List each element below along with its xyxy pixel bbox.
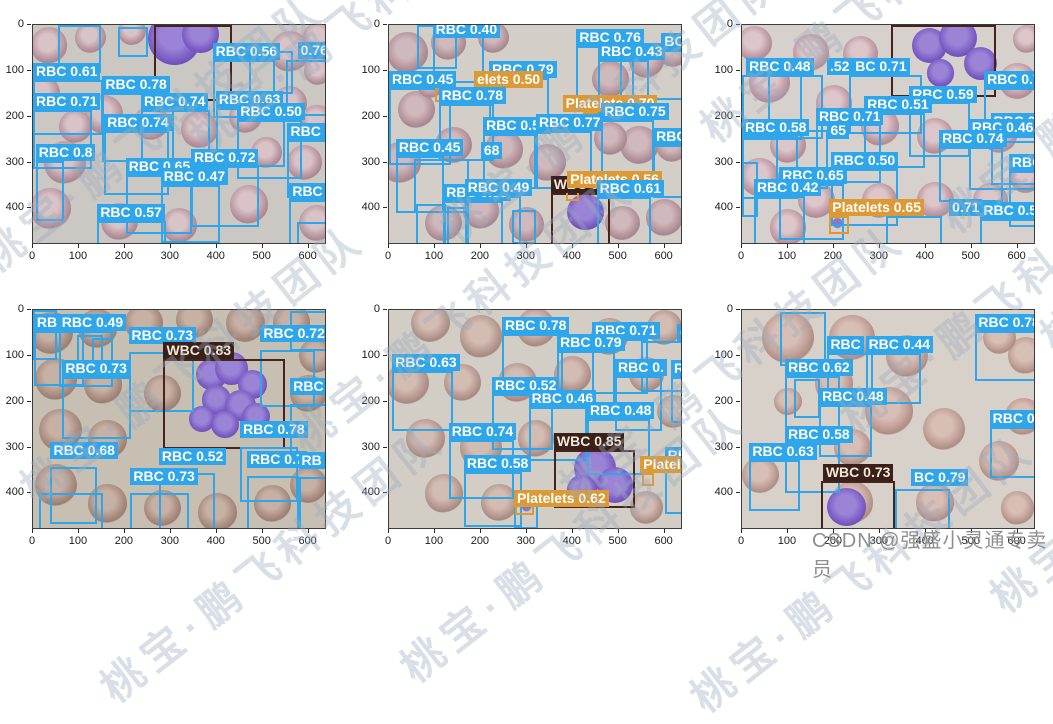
bbox-rbc [130, 493, 188, 529]
bbox-label-rbc: RBC [827, 336, 863, 353]
bbox-rbc [671, 377, 682, 423]
y-tick-label: 200 [0, 395, 24, 407]
y-tick-label: 400 [699, 486, 733, 498]
y-tick-mark [736, 162, 740, 163]
bbox-label-rbc: RBC 0.78 [240, 421, 307, 438]
y-tick-label: 0 [346, 303, 380, 315]
x-tick-label: 500 [609, 250, 627, 262]
x-tick-label: 600 [654, 250, 672, 262]
x-tick-mark [434, 529, 435, 533]
subplot-row2-col2: RBC 0.78RBC 0.71C 0.RBC 0.79RBC 0.63RBC … [388, 309, 682, 529]
x-tick-mark [124, 244, 125, 248]
bbox-label-rbc: RB [34, 314, 60, 331]
bbox-label-rbc: RBC 0.56 [213, 43, 280, 60]
bbox-label-rbc: RBC 0.44 [866, 336, 933, 353]
y-tick-label: 300 [0, 156, 24, 168]
bbox-rbc [895, 489, 950, 529]
x-tick-label: 200 [471, 535, 489, 547]
x-tick-label: 0 [738, 535, 744, 547]
rbc-cell [226, 309, 265, 342]
x-tick-label: 300 [517, 535, 535, 547]
x-tick-mark [262, 244, 263, 248]
bbox-label-rbc: RBC 0.58 [785, 426, 852, 443]
x-tick-mark [480, 244, 481, 248]
y-tick-mark [736, 309, 740, 310]
y-tick-label: 300 [346, 156, 380, 168]
x-tick-mark [1017, 244, 1018, 248]
x-tick-label: 0 [385, 535, 391, 547]
y-tick-label: 300 [699, 441, 733, 453]
y-tick-mark [383, 24, 387, 25]
y-tick-label: 0 [0, 18, 24, 30]
y-tick-label: 200 [699, 110, 733, 122]
bbox-label-rbc: RBC [290, 378, 326, 395]
bbox-rbc [754, 196, 805, 245]
x-tick-mark [787, 244, 788, 248]
bbox-rbc [601, 120, 654, 174]
y-tick-mark [383, 355, 387, 356]
bbox-rbc [299, 477, 326, 529]
bbox-label-rbc: RBC 0.74 [104, 114, 171, 131]
bbox-label-rbc: RBC 0.48 [746, 58, 813, 75]
bbox-rbc [118, 27, 147, 57]
y-tick-label: 0 [346, 18, 380, 30]
bbox-rbc [247, 476, 299, 529]
bbox-label-rbc: RB [299, 452, 325, 469]
x-tick-label: 200 [115, 535, 133, 547]
y-tick-mark [383, 207, 387, 208]
micrograph-row2-col2: RBC 0.78RBC 0.71C 0.RBC 0.79RBC 0.63RBC … [388, 309, 682, 529]
y-tick-mark [27, 309, 31, 310]
bbox-label-rbc: RBC 0.72 [260, 325, 326, 342]
bbox-rbc [39, 493, 103, 529]
y-tick-mark [383, 492, 387, 493]
y-tick-mark [27, 355, 31, 356]
y-tick-mark [383, 401, 387, 402]
x-tick-label: 400 [563, 535, 581, 547]
x-tick-mark [925, 244, 926, 248]
bbox-rbc [36, 161, 64, 221]
y-tick-mark [383, 447, 387, 448]
x-tick-label: 200 [115, 250, 133, 262]
y-tick-mark [383, 309, 387, 310]
bbox-wbc [821, 481, 895, 529]
bbox-rbc [62, 377, 131, 439]
y-tick-label: 0 [699, 18, 733, 30]
bbox-label-rbc: RBC 0.45 [396, 139, 463, 156]
x-tick-mark [480, 529, 481, 533]
y-tick-label: 0 [0, 303, 24, 315]
bbox-label-rbc: RBC 0.74 [939, 130, 1006, 147]
x-tick-label: 400 [207, 250, 225, 262]
x-tick-label: 0 [385, 250, 391, 262]
x-tick-label: 100 [425, 250, 443, 262]
bbox-label-rbc: RBC 0.63 [749, 443, 816, 460]
y-tick-mark [383, 116, 387, 117]
x-tick-mark [833, 244, 834, 248]
x-tick-mark [741, 529, 742, 533]
y-tick-label: 200 [699, 395, 733, 407]
rbc-cell [646, 199, 682, 236]
y-tick-label: 100 [346, 64, 380, 76]
bbox-label-rbc: RBC 0.75 [601, 103, 668, 120]
bbox-label-wbc: WBC 0.73 [823, 464, 894, 481]
x-tick-label: 500 [253, 250, 271, 262]
y-tick-label: 400 [0, 201, 24, 213]
x-tick-label: 400 [916, 250, 934, 262]
x-tick-mark [434, 244, 435, 248]
y-tick-mark [27, 24, 31, 25]
x-tick-label: 600 [298, 535, 316, 547]
bbox-label-platelets: Platelets 0.62 [514, 490, 609, 507]
x-tick-mark [526, 244, 527, 248]
bbox-label-rbc: RBC 0.42 [754, 179, 821, 196]
x-tick-mark [170, 529, 171, 533]
micrograph-row1-col2: RBC 0.40BC 0.RBC 0.76RBC 0.43RBC 0.79ele… [388, 24, 682, 244]
rbc-cell [460, 315, 502, 357]
bbox-rbc [980, 219, 1035, 244]
bbox-label-rbc: RBC 0.74 [141, 93, 208, 110]
bbox-rbc [597, 197, 651, 244]
x-tick-mark [388, 529, 389, 533]
bbox-label-rbc: RBC 0.8 [36, 144, 96, 161]
bbox-label-rbc: 68 [481, 142, 503, 159]
x-tick-mark [78, 244, 79, 248]
bbox-label-rbc: RBC 0.77 [536, 114, 603, 131]
y-tick-label: 200 [346, 395, 380, 407]
x-tick-label: 300 [517, 250, 535, 262]
bbox-label-rbc: C 0. [677, 324, 682, 341]
x-tick-mark [879, 244, 880, 248]
bbox-label-rbc: RBC [1009, 154, 1035, 171]
bbox-label-rbc: 65 [827, 122, 849, 139]
x-tick-mark [170, 244, 171, 248]
bbox-rbc [416, 204, 446, 244]
y-tick-label: 200 [346, 110, 380, 122]
x-tick-label: 500 [253, 535, 271, 547]
bbox-label-rbc: RBC 0.5 [980, 202, 1035, 219]
micrograph-row2-col3: RBC 0.78RBCRBC 0.44RBC 0.62RBC 0.48RBC 0… [741, 309, 1035, 529]
subplot-row1-col2: RBC 0.40BC 0.RBC 0.76RBC 0.43RBC 0.79ele… [388, 24, 682, 244]
rbc-cell [1001, 491, 1034, 524]
subplot-row2-col1: RBRBC 0.49RBC 0.73RBC 0.72WBC 0.83RBC 0.… [32, 309, 326, 529]
bbox-label-rbc: RBC 0.40 [433, 24, 500, 38]
y-tick-mark [736, 492, 740, 493]
bbox-label-rbc: RBC 0.58 [742, 119, 809, 136]
bbox-label-rbc: RBC 0.52 [159, 448, 226, 465]
x-tick-label: 200 [824, 250, 842, 262]
bbox-rbc [749, 460, 800, 510]
x-tick-mark [572, 529, 573, 533]
x-tick-label: 600 [298, 250, 316, 262]
rbc-cell [923, 408, 965, 450]
y-tick-label: 300 [346, 441, 380, 453]
bbox-rbc [392, 371, 453, 432]
bbox-label-rbc: RBC 0. [287, 123, 326, 140]
bbox-platelets [829, 216, 849, 234]
y-tick-label: 100 [699, 64, 733, 76]
x-tick-label: 600 [1007, 250, 1025, 262]
bbox-label-rbc: RBC 0.73 [130, 468, 197, 485]
bbox-rbc [886, 216, 942, 244]
subplot-row2-col3: RBC 0.78RBCRBC 0.44RBC 0.62RBC 0.48RBC 0… [741, 309, 1035, 529]
x-tick-label: 500 [962, 250, 980, 262]
bbox-rbc [512, 210, 536, 244]
y-tick-mark [736, 70, 740, 71]
x-tick-mark [618, 244, 619, 248]
y-tick-mark [27, 447, 31, 448]
bbox-label-rbc: RBC 0.74 [449, 423, 516, 440]
rbc-cell [741, 26, 772, 61]
bbox-rbc [447, 207, 469, 245]
x-tick-label: 300 [161, 250, 179, 262]
bbox-label-rbc: RBC 0.68 [50, 442, 117, 459]
y-tick-mark [383, 162, 387, 163]
x-tick-mark [124, 529, 125, 533]
micrograph-row1-col1: 0.76RBC 0.56RBC 0.61RBC 0.78RBC 0.71RBC … [32, 24, 326, 244]
x-tick-mark [32, 529, 33, 533]
x-tick-mark [78, 529, 79, 533]
x-tick-label: 300 [161, 535, 179, 547]
y-tick-label: 300 [699, 156, 733, 168]
x-tick-label: 0 [29, 250, 35, 262]
x-tick-label: 0 [29, 535, 35, 547]
x-tick-label: 100 [69, 250, 87, 262]
bbox-label-rbc: RBC 0.62 [785, 359, 852, 376]
bbox-label-rbc: RBC 0.49 [465, 179, 532, 196]
x-tick-mark [664, 244, 665, 248]
bbox-label-rbc: RBC 0.61 [597, 180, 664, 197]
y-tick-label: 100 [0, 64, 24, 76]
y-tick-mark [27, 162, 31, 163]
bbox-label-rbc: RBC 0.71 [816, 108, 883, 125]
x-tick-label: 100 [778, 250, 796, 262]
y-tick-label: 200 [0, 110, 24, 122]
bbox-rbc [939, 147, 1003, 202]
x-tick-label: 100 [425, 535, 443, 547]
x-tick-mark [618, 529, 619, 533]
x-tick-mark [262, 529, 263, 533]
bbox-label-rbc: RBC 0.6 [990, 410, 1035, 427]
x-tick-mark [971, 244, 972, 248]
y-tick-mark [736, 447, 740, 448]
bbox-label-wbc: WBC 0.85 [554, 433, 625, 450]
x-tick-label: 600 [654, 535, 672, 547]
x-tick-mark [32, 244, 33, 248]
x-tick-mark [526, 529, 527, 533]
y-tick-mark [736, 355, 740, 356]
bbox-label-rbc: RBC 0.48 [819, 388, 886, 405]
x-tick-mark [388, 244, 389, 248]
y-tick-label: 300 [0, 441, 24, 453]
bbox-label-rbc: RBC 0.47 [161, 168, 228, 185]
bbox-rbc [161, 185, 220, 243]
x-tick-label: 400 [207, 535, 225, 547]
rbc-cell [411, 309, 450, 342]
y-tick-mark [736, 401, 740, 402]
x-tick-label: 100 [69, 535, 87, 547]
y-tick-label: 400 [346, 201, 380, 213]
bbox-label-rbc: 0.76 [298, 42, 326, 59]
bbox-label-rbc: RBC 0. [289, 183, 326, 200]
y-tick-label: 400 [346, 486, 380, 498]
x-tick-label: 500 [609, 535, 627, 547]
bbox-rbc [297, 222, 326, 244]
bbox-label-rbc: .52 [827, 58, 852, 75]
bbox-platelets [642, 473, 654, 486]
x-tick-mark [308, 529, 309, 533]
y-tick-mark [736, 207, 740, 208]
bbox-label-rbc: RBC 0.79 [557, 334, 624, 351]
y-tick-label: 100 [0, 349, 24, 361]
bbox-label-rbc: RBC 0.48 [587, 402, 654, 419]
y-tick-mark [27, 492, 31, 493]
y-tick-mark [27, 207, 31, 208]
micrograph-row2-col1: RBRBC 0.49RBC 0.73RBC 0.72WBC 0.83RBC 0.… [32, 309, 326, 529]
x-tick-label: 200 [471, 250, 489, 262]
x-tick-mark [308, 244, 309, 248]
bbox-label-rbc: RBC 0.71 [33, 93, 100, 110]
bbox-label-rbc: RBC 0. [615, 359, 667, 376]
bbox-label-rbc: RBC 0.78 [975, 314, 1035, 331]
bbox-label-rbc: RBC 0.46 [529, 390, 596, 407]
y-tick-label: 100 [699, 349, 733, 361]
y-tick-mark [736, 116, 740, 117]
bbox-label-rbc: RB [671, 360, 682, 377]
detection-figure: 0.76RBC 0.56RBC 0.61RBC 0.78RBC 0.71RBC … [0, 0, 1053, 561]
y-tick-mark [383, 70, 387, 71]
micrograph-row1-col3: .52BC 0.71RBC 0.48RBC 0.7RBC 0.59RBC 0.5… [741, 24, 1035, 244]
bbox-label-rbc: RBC 0.43 [598, 43, 665, 60]
bbox-label-rbc: RBC 0.78 [502, 317, 569, 334]
x-tick-mark [216, 529, 217, 533]
bbox-label-platelets: Platelets 0.65 [829, 199, 924, 216]
bbox-label-rbc: RBC 0.7 [984, 71, 1035, 88]
x-tick-label: 100 [778, 535, 796, 547]
bbox-label-rbc: RBC 0.78 [439, 87, 506, 104]
y-tick-label: 0 [699, 303, 733, 315]
bbox-label-rbc: BC 0.71 [852, 58, 909, 75]
y-tick-mark [27, 70, 31, 71]
bbox-rbc [990, 427, 1035, 478]
x-tick-mark [787, 529, 788, 533]
bbox-label-rbc: RBC 0.73 [62, 360, 129, 377]
x-tick-mark [741, 244, 742, 248]
bbox-label-rbc: BC 0.79 [911, 469, 968, 486]
y-tick-mark [736, 24, 740, 25]
csdn-watermark: CSDN @强盛小灵通专卖员 [812, 524, 1053, 582]
bbox-label-rbc: RBC 0.61 [33, 63, 100, 80]
rbc-cell [1013, 25, 1035, 53]
bbox-label-platelets: Platelets [640, 456, 682, 473]
bbox-label-rbc: RBC 0.72 [191, 149, 258, 166]
bbox-label-rbc: RBC 0.57 [97, 204, 164, 221]
y-tick-label: 400 [0, 486, 24, 498]
y-tick-mark [27, 116, 31, 117]
x-tick-label: 300 [870, 250, 888, 262]
subplot-row1-col1: 0.76RBC 0.56RBC 0.61RBC 0.78RBC 0.71RBC … [32, 24, 326, 244]
y-tick-label: 400 [699, 201, 733, 213]
bbox-label-rbc: RBC 0.50 [237, 103, 304, 120]
x-tick-label: 0 [738, 250, 744, 262]
bbox-label-rbc: RBC [653, 128, 682, 145]
bbox-rbc [975, 331, 1035, 381]
bbox-label-wbc: WBC 0.83 [163, 342, 234, 359]
x-tick-mark [664, 529, 665, 533]
y-tick-label: 100 [346, 349, 380, 361]
bbox-label-rbc: RBC 0.58 [464, 455, 531, 472]
bbox-label-rbc: RBC 0.78 [102, 76, 169, 93]
subplot-row1-col3: .52BC 0.71RBC 0.48RBC 0.7RBC 0.59RBC 0.5… [741, 24, 1035, 244]
bbox-rbc [97, 221, 166, 244]
bbox-label-rbc: RBC 0.49 [59, 314, 126, 331]
bbox-label-rbc: 0.71 [949, 199, 982, 216]
bbox-label-rbc: RBC 0.45 [389, 71, 456, 88]
y-tick-mark [27, 401, 31, 402]
bbox-rbc [794, 379, 819, 418]
bbox-label-rbc: RBC 0.63 [392, 354, 459, 371]
bbox-label-platelets: elets 0.50 [474, 71, 543, 88]
x-tick-label: 400 [563, 250, 581, 262]
x-tick-mark [216, 244, 217, 248]
x-tick-mark [572, 244, 573, 248]
